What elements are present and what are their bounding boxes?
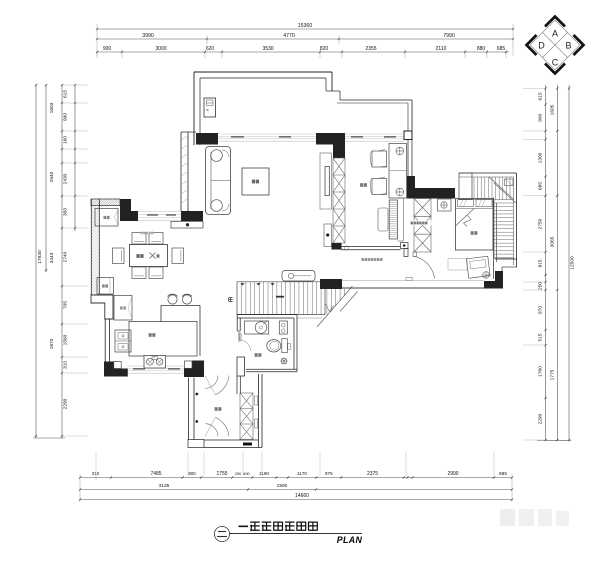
svg-text:A: A bbox=[552, 29, 558, 39]
svg-text:2740: 2740 bbox=[63, 251, 69, 262]
svg-text:990: 990 bbox=[538, 113, 544, 121]
svg-text:2430: 2430 bbox=[63, 173, 69, 184]
svg-text:3990: 3990 bbox=[142, 33, 154, 39]
svg-text:PLAN: PLAN bbox=[337, 535, 363, 545]
svg-text:D: D bbox=[538, 41, 545, 51]
svg-text:310: 310 bbox=[92, 471, 100, 476]
svg-text:815: 815 bbox=[538, 259, 544, 267]
svg-text:1605: 1605 bbox=[550, 104, 556, 115]
svg-text:350: 350 bbox=[63, 208, 69, 216]
svg-text:12500: 12500 bbox=[570, 256, 576, 270]
svg-text:875: 875 bbox=[325, 471, 333, 476]
svg-text:615: 615 bbox=[538, 92, 544, 100]
svg-text:990: 990 bbox=[63, 113, 69, 121]
svg-text:3530: 3530 bbox=[262, 46, 273, 52]
svg-text:3000: 3000 bbox=[155, 46, 166, 52]
svg-text:380: 380 bbox=[188, 471, 196, 476]
svg-text:160: 160 bbox=[63, 136, 69, 144]
svg-text:2290: 2290 bbox=[63, 398, 69, 409]
svg-text:705: 705 bbox=[63, 301, 69, 309]
svg-text:3065: 3065 bbox=[550, 236, 556, 247]
svg-text:7485: 7485 bbox=[150, 471, 161, 477]
svg-text:2940: 2940 bbox=[49, 171, 55, 182]
svg-text:14660: 14660 bbox=[295, 493, 309, 499]
svg-text:B: B bbox=[565, 41, 571, 51]
svg-text:685: 685 bbox=[497, 46, 506, 52]
svg-text:3135: 3135 bbox=[159, 483, 170, 489]
svg-text:615: 615 bbox=[63, 90, 69, 98]
svg-text:1170: 1170 bbox=[297, 471, 307, 476]
svg-text:7990: 7990 bbox=[443, 33, 455, 39]
svg-text:15360: 15360 bbox=[298, 23, 313, 29]
svg-text:2290: 2290 bbox=[538, 413, 544, 424]
svg-text:4770: 4770 bbox=[283, 33, 295, 39]
svg-text:880: 880 bbox=[477, 46, 486, 52]
svg-text:685: 685 bbox=[538, 182, 544, 190]
svg-text:2110: 2110 bbox=[436, 46, 447, 52]
svg-text:1560: 1560 bbox=[63, 334, 69, 345]
svg-text:17930: 17930 bbox=[37, 250, 43, 264]
svg-text:2355: 2355 bbox=[365, 46, 376, 52]
svg-text:820: 820 bbox=[320, 46, 329, 52]
svg-text:900: 900 bbox=[103, 46, 112, 52]
svg-text:1775: 1775 bbox=[550, 369, 556, 380]
svg-text:970: 970 bbox=[538, 306, 544, 314]
svg-text:1190: 1190 bbox=[259, 471, 269, 476]
svg-text:2750: 2750 bbox=[538, 218, 544, 229]
svg-text:2375: 2375 bbox=[367, 471, 378, 477]
svg-text:1870: 1870 bbox=[49, 338, 55, 349]
svg-text:C: C bbox=[552, 58, 559, 68]
svg-text:1760: 1760 bbox=[538, 366, 544, 377]
svg-text:250: 250 bbox=[538, 282, 544, 290]
svg-text:310: 310 bbox=[63, 361, 69, 369]
svg-text:620: 620 bbox=[206, 46, 215, 52]
svg-text:685: 685 bbox=[499, 471, 507, 477]
svg-text:3443: 3443 bbox=[49, 252, 55, 263]
svg-text:250: 250 bbox=[235, 472, 241, 476]
svg-text:1590: 1590 bbox=[277, 483, 288, 489]
svg-text:1755: 1755 bbox=[216, 471, 227, 477]
svg-text:2990: 2990 bbox=[447, 471, 458, 477]
svg-text:600: 600 bbox=[243, 472, 249, 476]
svg-text:1603: 1603 bbox=[49, 102, 55, 113]
svg-text:515: 515 bbox=[538, 333, 544, 341]
svg-text:1300: 1300 bbox=[538, 152, 544, 163]
